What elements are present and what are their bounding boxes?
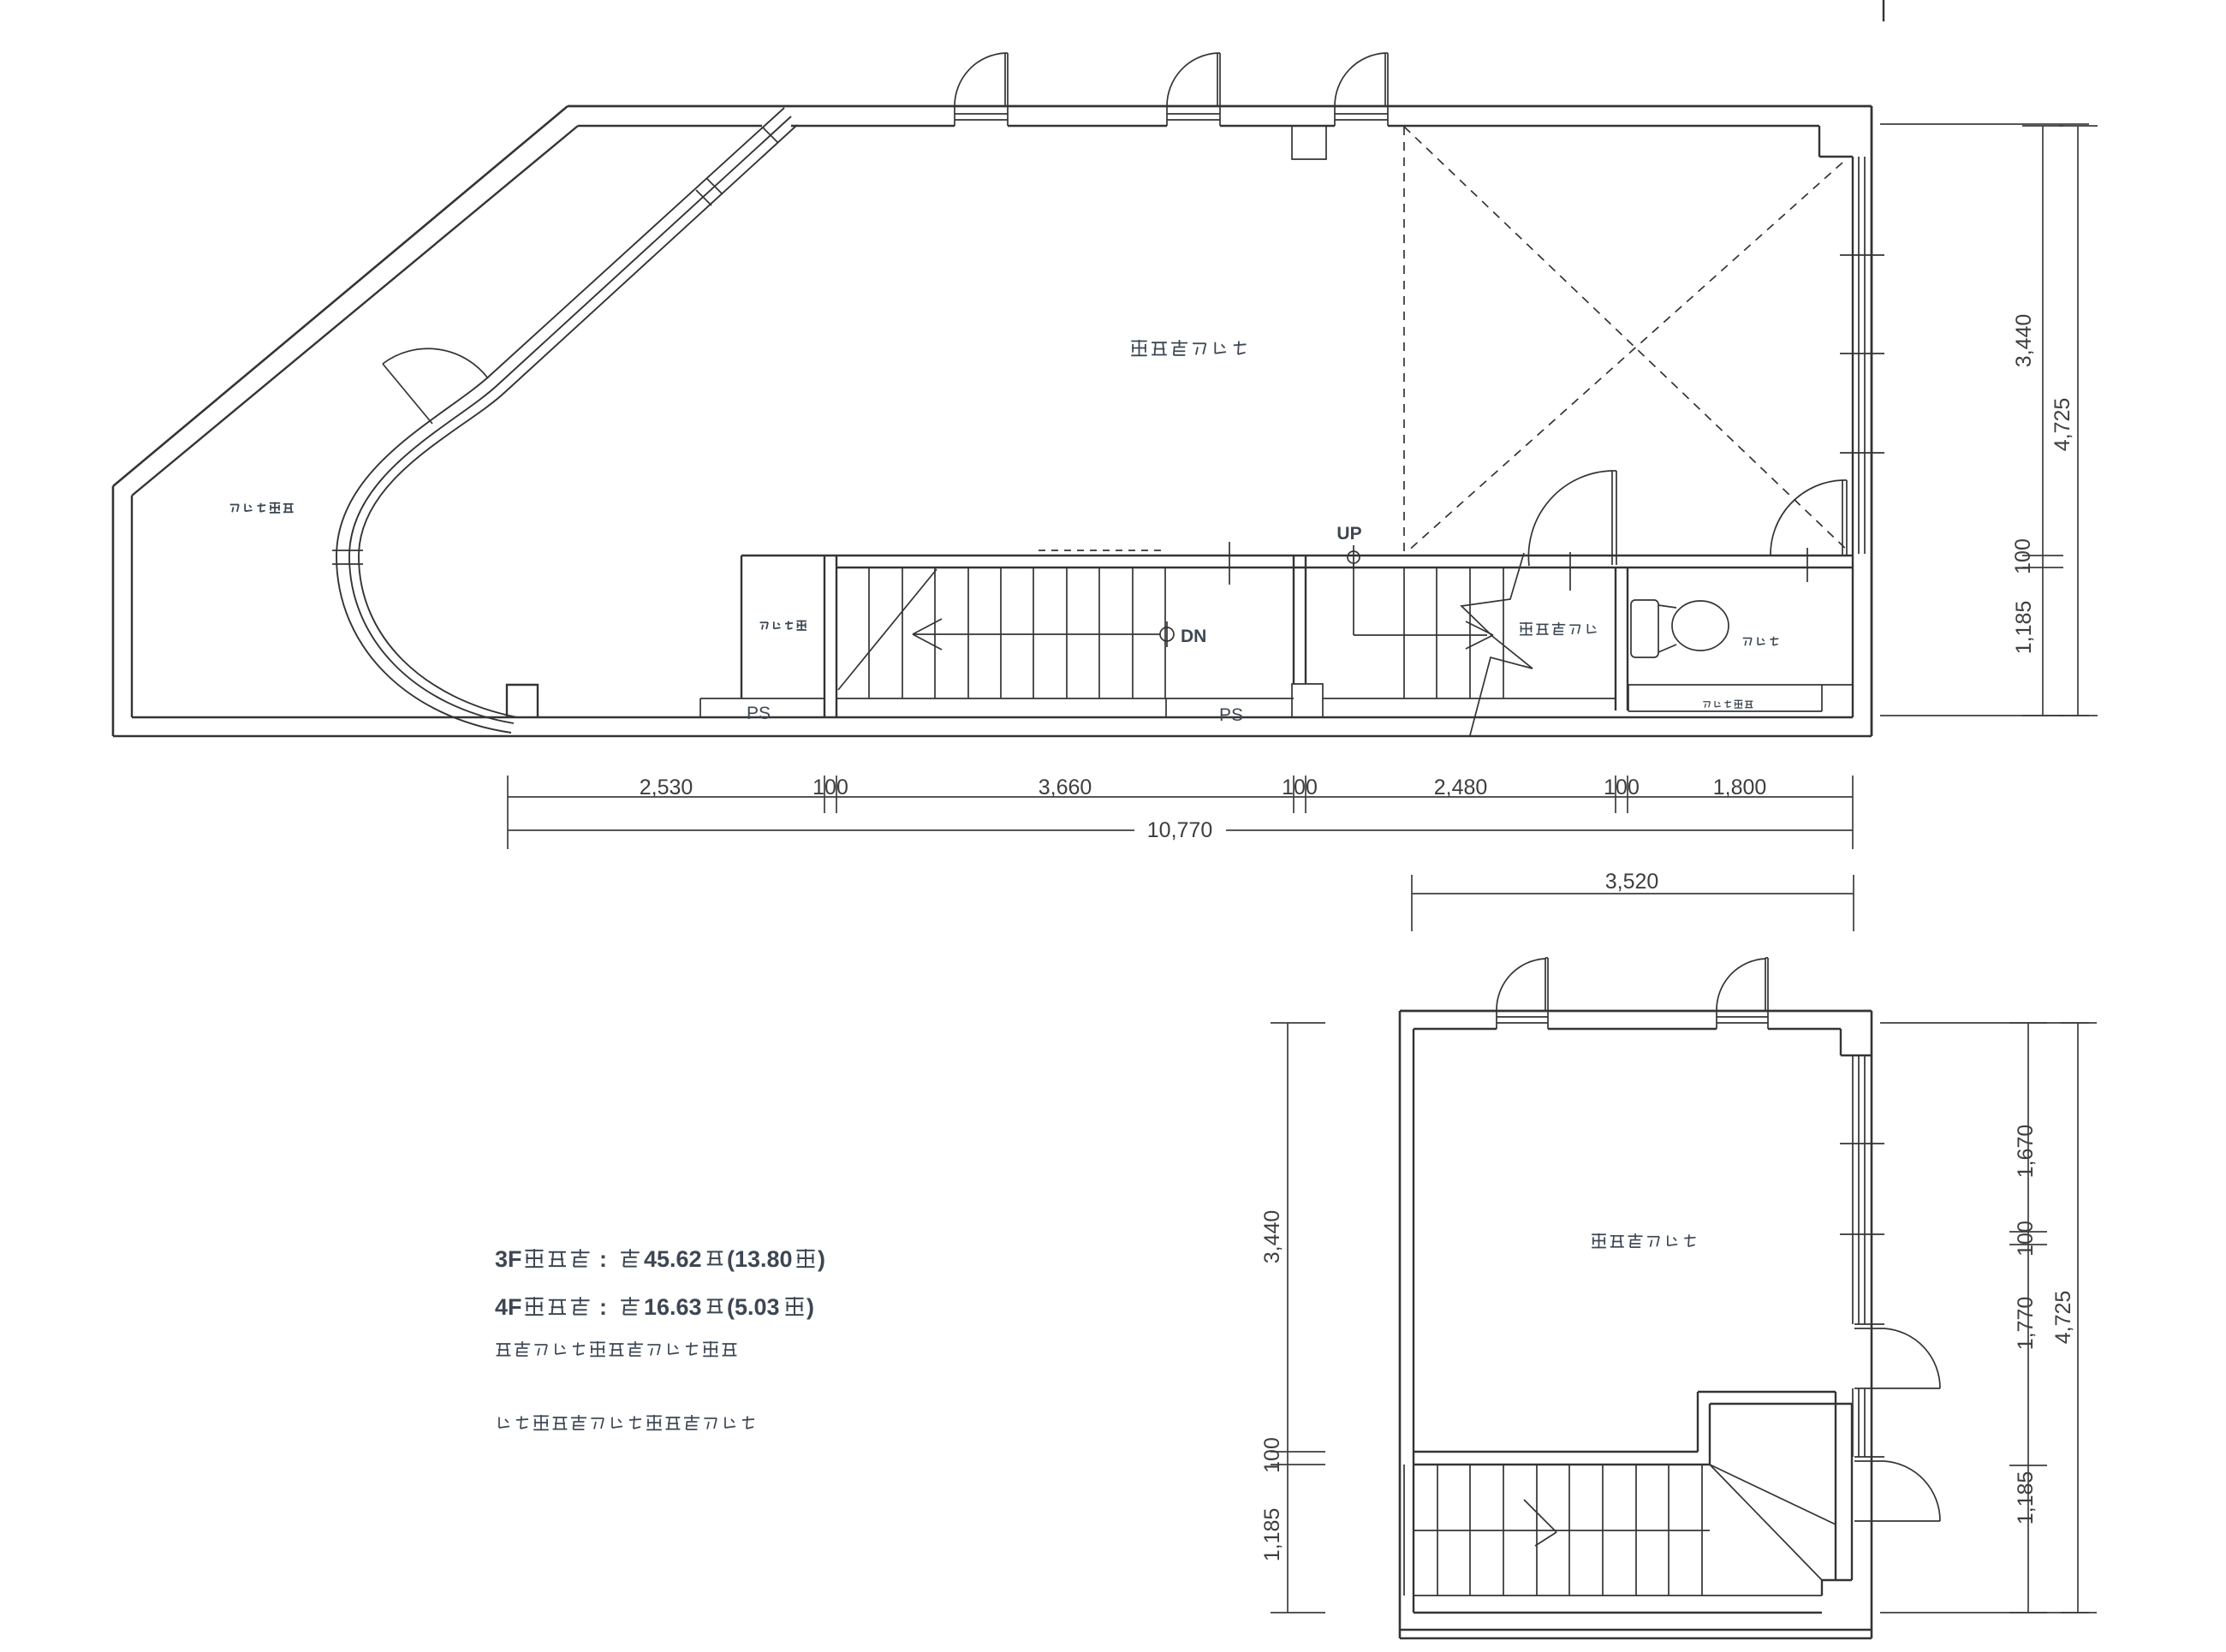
svg-text:2,480: 2,480 [1434, 775, 1488, 799]
svg-text:16.63: 16.63 [644, 1294, 702, 1320]
svg-text:10,770: 10,770 [1147, 818, 1212, 842]
svg-text:100: 100 [1282, 775, 1318, 799]
svg-text:(13.80: (13.80 [727, 1246, 793, 1272]
svg-text:3,440: 3,440 [2012, 314, 2036, 368]
svg-text:): ) [818, 1246, 825, 1272]
svg-text:4,725: 4,725 [2051, 1291, 2075, 1345]
svg-text::: : [599, 1294, 607, 1320]
svg-text:100: 100 [1604, 775, 1640, 799]
svg-text:100: 100 [812, 775, 848, 799]
svg-text:100: 100 [2014, 1221, 2038, 1257]
svg-text:3,440: 3,440 [1260, 1210, 1284, 1264]
svg-text:2,530: 2,530 [640, 775, 693, 799]
svg-text:UP: UP [1336, 524, 1361, 544]
svg-text:): ) [806, 1294, 814, 1320]
svg-text:3,520: 3,520 [1605, 870, 1659, 894]
svg-text::: : [599, 1246, 607, 1272]
svg-text:45.62: 45.62 [644, 1246, 702, 1272]
svg-text:DN: DN [1181, 627, 1206, 646]
svg-text:3,660: 3,660 [1039, 775, 1092, 799]
svg-text:3F: 3F [495, 1246, 522, 1272]
svg-text:1,670: 1,670 [2014, 1125, 2038, 1179]
svg-text:PS: PS [747, 704, 771, 723]
svg-text:1,770: 1,770 [2014, 1297, 2038, 1351]
svg-text:1,185: 1,185 [2014, 1471, 2038, 1525]
svg-text:4F: 4F [495, 1294, 522, 1320]
svg-text:4,725: 4,725 [2050, 398, 2074, 452]
svg-text:1,185: 1,185 [1260, 1508, 1284, 1562]
svg-text:1,185: 1,185 [2012, 601, 2036, 655]
svg-text:100: 100 [1260, 1437, 1284, 1473]
svg-text:1,800: 1,800 [1713, 775, 1767, 799]
svg-text:(5.03: (5.03 [727, 1294, 780, 1320]
svg-text:PS: PS [1219, 705, 1243, 725]
svg-text:100: 100 [2011, 538, 2035, 574]
